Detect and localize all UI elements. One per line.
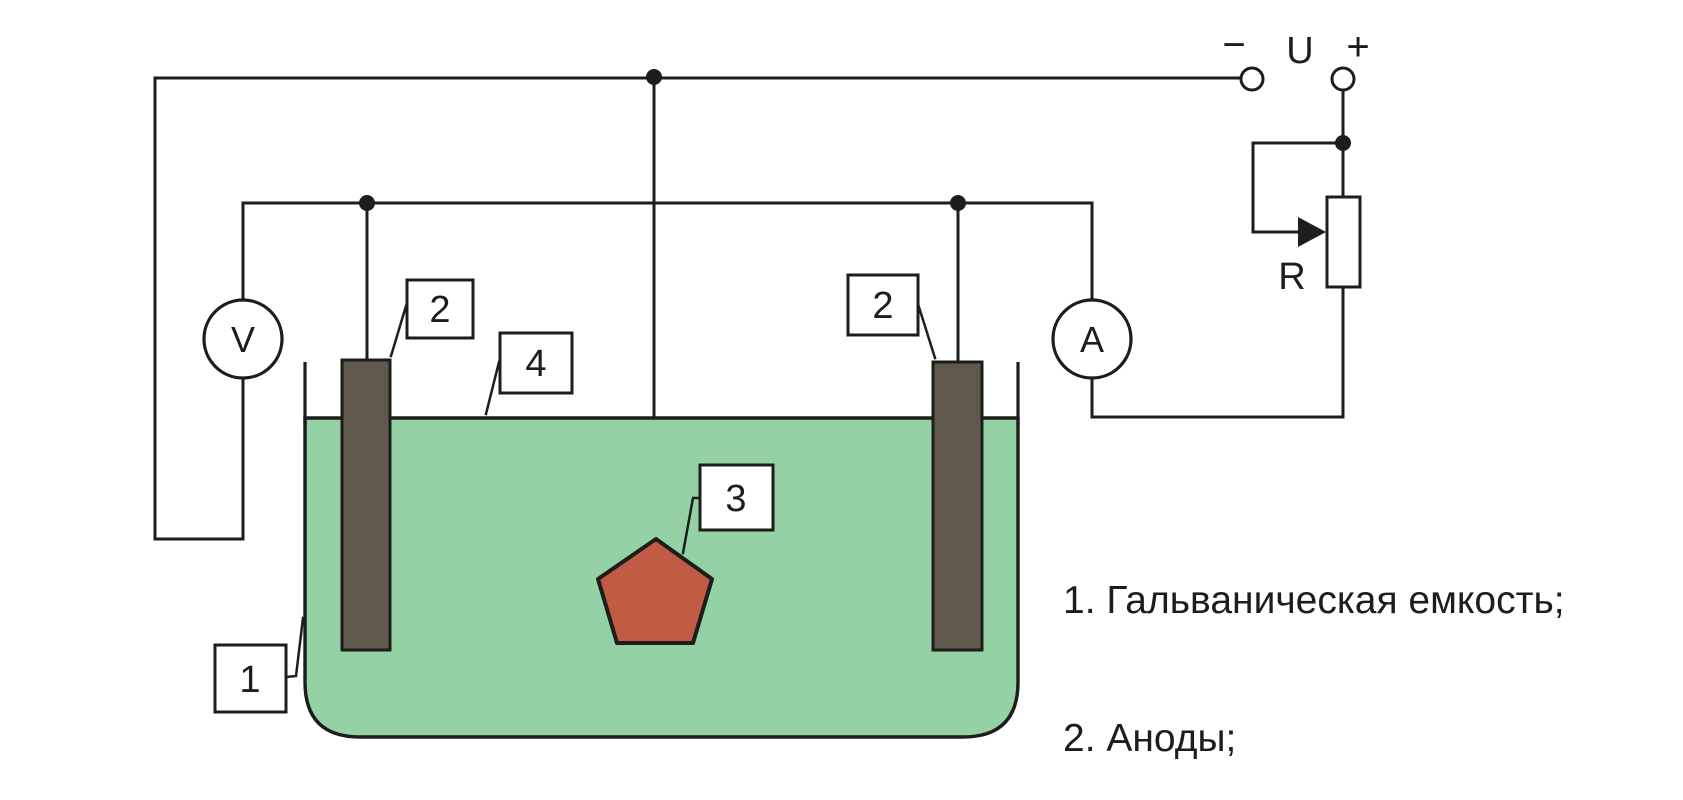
right-anode xyxy=(933,362,982,650)
rheostat-label: R xyxy=(1278,256,1305,298)
left-anode xyxy=(342,360,390,650)
callout-leader-electrolyte xyxy=(486,362,499,414)
callout-leader-anode-left xyxy=(391,306,406,356)
callout-leader-tank xyxy=(286,618,303,677)
anode-bus-wire xyxy=(243,203,1092,300)
rheostat-body xyxy=(1327,197,1360,287)
plus-label: + xyxy=(1346,25,1369,69)
callout-num-anode-right: 2 xyxy=(872,285,893,327)
callout-num-part: 3 xyxy=(725,478,746,520)
electroplating-diagram: − U + R V A 2 2 4 3 1 1. Гальваническая … xyxy=(0,0,1683,800)
minus-label: − xyxy=(1222,23,1245,67)
legend-line-1: 1. Гальваническая емкость; xyxy=(1063,578,1565,624)
source-label: U xyxy=(1286,30,1313,72)
minus-terminal-icon xyxy=(1241,68,1263,90)
callout-num-anode-left: 2 xyxy=(429,289,450,331)
junction-dot-left-anode xyxy=(359,195,375,211)
callout-num-tank: 1 xyxy=(239,659,260,701)
legend: 1. Гальваническая емкость; 2. Аноды; 3. … xyxy=(1063,486,1565,800)
voltmeter-label: V xyxy=(231,319,255,360)
plus-terminal-icon xyxy=(1332,68,1354,90)
legend-line-2: 2. Аноды; xyxy=(1063,716,1565,762)
callout-num-electrolyte: 4 xyxy=(525,343,546,385)
junction-dot-top xyxy=(646,69,662,85)
ammeter-label: A xyxy=(1080,319,1104,360)
junction-dot-rheostat xyxy=(1335,135,1351,151)
junction-dot-right-anode xyxy=(950,195,966,211)
callout-leader-anode-right xyxy=(918,304,935,358)
wiper-arrow-icon xyxy=(1298,217,1326,247)
